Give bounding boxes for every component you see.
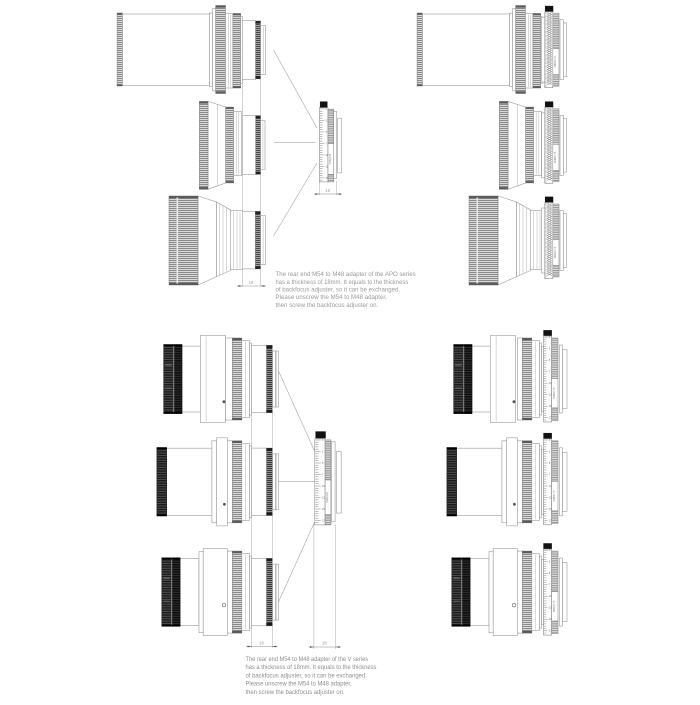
svg-text:has a thickness of 18mm. It eq: has a thickness of 18mm. It equals to th… — [276, 279, 409, 286]
svg-text:M48x0.75: M48x0.75 — [553, 151, 557, 163]
svg-text:has a thickness of 18mm. It eq: has a thickness of 18mm. It equals to th… — [246, 664, 377, 671]
svg-text:18: 18 — [259, 640, 264, 645]
svg-text:18: 18 — [325, 188, 330, 193]
svg-text:M48x0.75: M48x0.75 — [552, 387, 556, 399]
svg-text:18: 18 — [322, 641, 327, 646]
svg-text:M48x0.75: M48x0.75 — [326, 491, 329, 502]
svg-text:The rear end M54 to M48 adapte: The rear end M54 to M48 adapter of the V… — [246, 656, 369, 663]
svg-text:M48x0.75: M48x0.75 — [329, 153, 332, 164]
svg-text:M48x0.75: M48x0.75 — [553, 55, 557, 67]
svg-text:then screw the backfocus adjus: then screw the backfocus adjuster on. — [276, 302, 379, 309]
svg-text:M48x0.75: M48x0.75 — [553, 246, 557, 258]
svg-text:of backfocus adjuster, so it c: of backfocus adjuster, so it can be exch… — [246, 672, 368, 679]
svg-text:M48x0.75: M48x0.75 — [552, 600, 556, 612]
svg-text:The rear end M54 to M48 adapte: The rear end M54 to M48 adapter of the A… — [276, 271, 416, 278]
svg-text:Please unscrew the M54 to M48: Please unscrew the M54 to M48 adapter, — [246, 681, 352, 688]
svg-text:18: 18 — [249, 280, 254, 285]
svg-text:Please unscrew the M54 to M48: Please unscrew the M54 to M48 adapter, — [276, 294, 388, 301]
svg-text:of backfocus adjuster, so it c: of backfocus adjuster, so it can be exch… — [276, 287, 401, 294]
svg-text:then screw the backfocus adjus: then screw the backfocus adjuster on. — [246, 689, 345, 696]
svg-text:M48x0.75: M48x0.75 — [552, 490, 556, 502]
